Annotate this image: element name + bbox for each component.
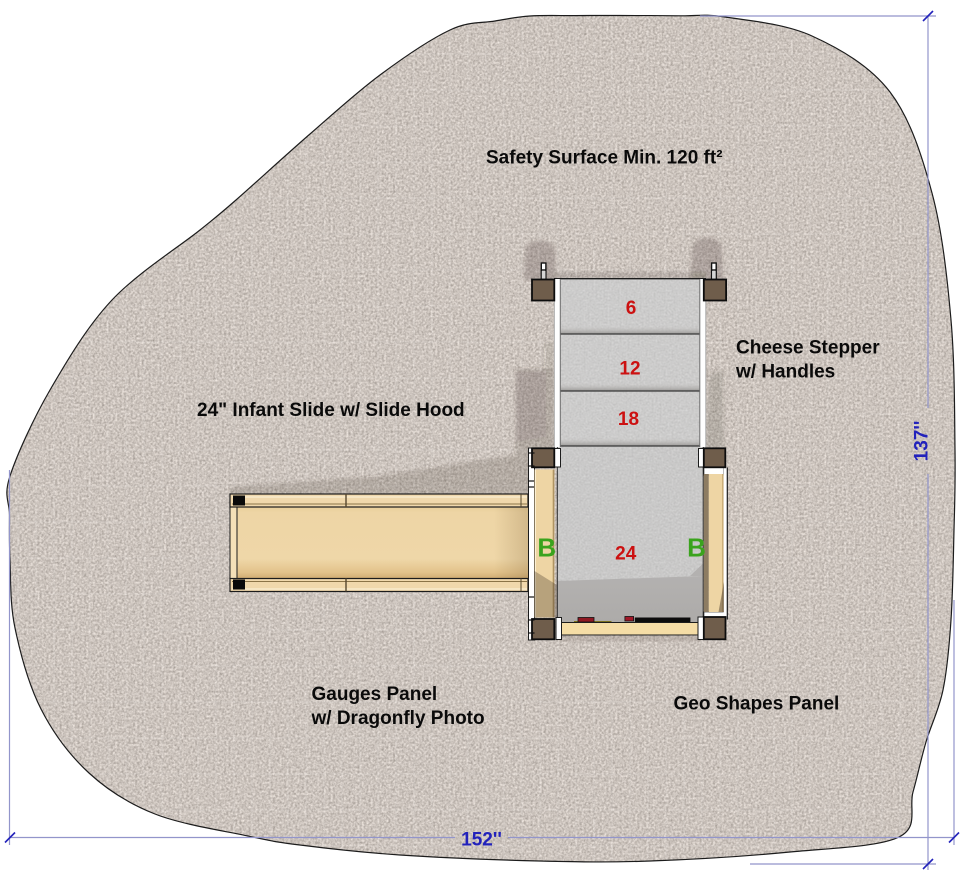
svg-text:137'': 137'' [912,421,933,462]
svg-text:Safety Surface Min. 120 ft²: Safety Surface Min. 120 ft² [486,148,723,169]
svg-text:6: 6 [626,298,637,319]
svg-text:Gauges Panel: Gauges Panel [312,684,438,705]
svg-text:Geo Shapes Panel: Geo Shapes Panel [674,694,840,715]
svg-text:Cheese Stepper: Cheese Stepper [736,338,880,359]
svg-text:B: B [687,533,706,563]
svg-text:24: 24 [615,544,637,565]
svg-text:B: B [537,533,556,563]
svg-text:24" Infant Slide w/ Slide Hood: 24" Infant Slide w/ Slide Hood [197,400,465,421]
svg-text:w/ Handles: w/ Handles [735,362,835,383]
svg-text:152'': 152'' [461,830,502,851]
svg-text:w/ Dragonfly Photo: w/ Dragonfly Photo [311,708,485,729]
svg-text:18: 18 [618,409,639,430]
svg-text:12: 12 [619,359,640,380]
